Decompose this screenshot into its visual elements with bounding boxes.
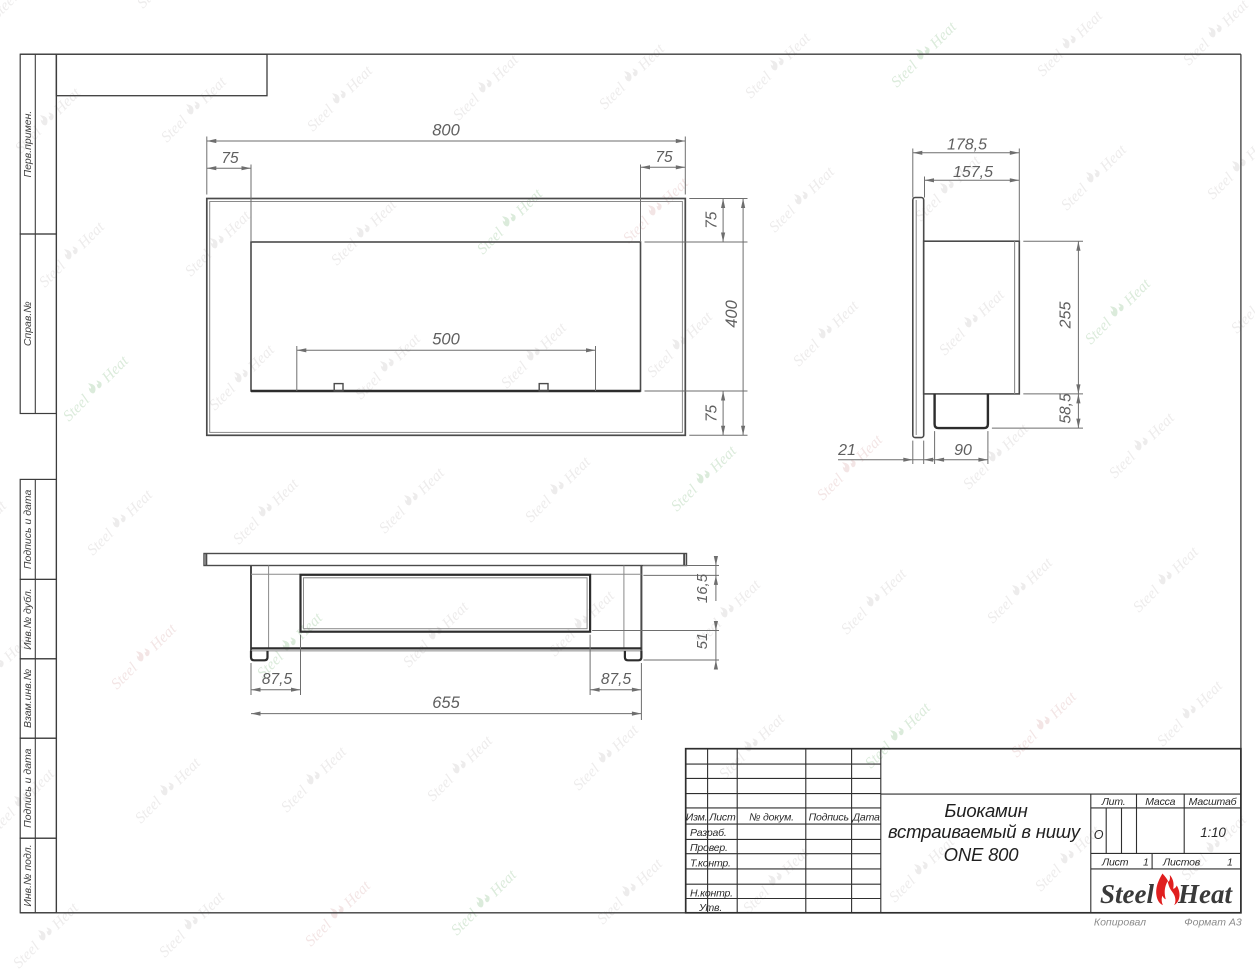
- svg-text:Подпись и дата: Подпись и дата: [22, 748, 34, 828]
- svg-text:1:10: 1:10: [1200, 825, 1226, 840]
- svg-text:Н.контр.: Н.контр.: [690, 888, 733, 900]
- svg-text:75: 75: [655, 149, 673, 166]
- svg-text:16,5: 16,5: [694, 573, 711, 603]
- svg-text:51: 51: [694, 633, 711, 650]
- svg-text:Инв.№ дубл.: Инв.№ дубл.: [22, 588, 34, 650]
- svg-text:Биокамин: Биокамин: [944, 800, 1027, 821]
- svg-text:Лист: Лист: [1101, 857, 1129, 869]
- svg-text:Подпись: Подпись: [809, 812, 849, 824]
- svg-text:Масса: Масса: [1145, 796, 1175, 808]
- svg-text:75: 75: [704, 211, 721, 229]
- svg-text:1: 1: [1143, 857, 1149, 869]
- svg-text:Утв.: Утв.: [698, 902, 722, 914]
- svg-text:58,5: 58,5: [1058, 393, 1075, 424]
- svg-text:87,5: 87,5: [262, 671, 293, 688]
- svg-text:800: 800: [432, 122, 460, 140]
- svg-text:Листов: Листов: [1162, 857, 1201, 869]
- svg-text:21: 21: [837, 442, 856, 459]
- svg-text:400: 400: [723, 299, 741, 327]
- svg-text:Подпись и дата: Подпись и дата: [22, 490, 34, 570]
- svg-text:Steel: Steel: [1100, 879, 1154, 909]
- svg-text:Масштаб: Масштаб: [1189, 796, 1238, 808]
- svg-text:Копировал: Копировал: [1094, 917, 1146, 929]
- svg-text:О: О: [1094, 828, 1104, 842]
- svg-text:встраиваемый в нишу: встраиваемый в нишу: [888, 821, 1082, 842]
- svg-text:Провер.: Провер.: [690, 842, 728, 854]
- svg-text:Формат А3: Формат А3: [1184, 917, 1242, 929]
- svg-text:90: 90: [954, 442, 972, 459]
- svg-text:Лист: Лист: [708, 812, 736, 824]
- svg-text:Справ.№: Справ.№: [22, 301, 34, 346]
- svg-text:Взам.инв.№: Взам.инв.№: [22, 669, 34, 728]
- svg-text:655: 655: [432, 694, 460, 712]
- svg-text:87,5: 87,5: [601, 671, 632, 688]
- svg-text:ONE 800: ONE 800: [944, 844, 1020, 865]
- svg-text:75: 75: [704, 405, 721, 423]
- svg-text:Дата: Дата: [852, 812, 880, 824]
- svg-text:75: 75: [221, 150, 239, 167]
- svg-text:500: 500: [432, 331, 460, 349]
- svg-text:255: 255: [1058, 302, 1075, 330]
- svg-text:Инв.№ подл.: Инв.№ подл.: [22, 844, 34, 906]
- svg-text:Разраб.: Разраб.: [690, 827, 727, 839]
- svg-text:157,5: 157,5: [953, 164, 993, 181]
- svg-text:Изм.: Изм.: [686, 812, 708, 824]
- svg-text:Heat: Heat: [1177, 879, 1233, 909]
- svg-text:Т.контр.: Т.контр.: [690, 857, 731, 869]
- svg-text:Перв.примен.: Перв.примен.: [22, 111, 34, 178]
- svg-text:178,5: 178,5: [947, 137, 987, 154]
- svg-text:1: 1: [1227, 857, 1233, 869]
- svg-text:Лит.: Лит.: [1101, 796, 1126, 808]
- svg-text:№ докум.: № докум.: [749, 812, 794, 824]
